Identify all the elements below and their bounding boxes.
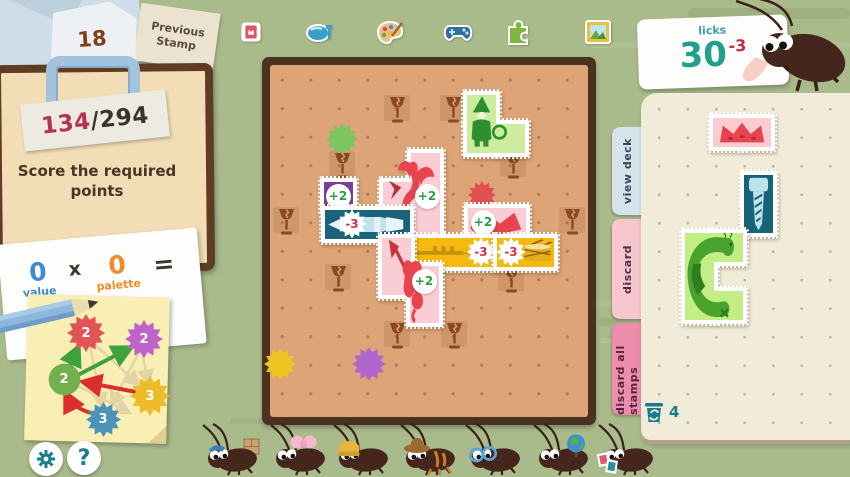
objective-text: Score the required points (6, 162, 188, 201)
previous-stamp-count: 18 (77, 26, 108, 52)
cupid-stamp[interactable]: +2 (378, 234, 443, 327)
screw-stamp[interactable] (740, 171, 777, 237)
broken-goblet-icon (563, 208, 582, 235)
crew-roach-globe[interactable] (531, 422, 593, 477)
broken-goblet-icon (329, 265, 348, 292)
discard-label: discard (621, 245, 634, 294)
value-number: 0 (20, 258, 56, 286)
licking-roach (722, 0, 850, 98)
score-current: 134 (40, 108, 92, 139)
crew-roach-glasses[interactable] (463, 422, 525, 477)
crew-roach-bow[interactable] (268, 422, 330, 477)
crown-stamp[interactable] (709, 114, 775, 151)
broken-goblet-icon (445, 322, 464, 349)
discard-count: 4 (669, 403, 679, 421)
caterpillar-stamp[interactable] (681, 229, 747, 324)
broken-goblet-icon (277, 208, 296, 235)
food-icon[interactable] (305, 17, 335, 47)
puzzle-icon[interactable] (503, 17, 533, 47)
times-sign: x (68, 260, 82, 280)
controller-icon[interactable] (443, 17, 473, 47)
previous-stamp-card[interactable]: Previous Stamp (133, 3, 220, 72)
view-deck-tab[interactable]: view deck (612, 127, 642, 215)
mini-stamp-icon[interactable] (238, 19, 264, 45)
crew-roach-stamps[interactable] (596, 422, 658, 477)
palette-icon[interactable] (375, 17, 405, 47)
discard-tab[interactable]: discard (612, 219, 642, 319)
frame-icon[interactable] (583, 17, 613, 47)
broken-goblet-icon (444, 96, 463, 123)
stamp-bonus-badge: +2 (412, 269, 437, 294)
crew-roach-cowboy-hat[interactable] (398, 422, 460, 477)
gnome-art-icon (467, 95, 525, 153)
licks-value: 30 (679, 40, 727, 72)
drum-stamp[interactable]: -3 (493, 234, 558, 271)
broken-goblet-icon (388, 96, 407, 123)
equals-sign: = (152, 251, 175, 278)
view-deck-label: view deck (621, 138, 634, 204)
palette-number: 0 (94, 251, 141, 280)
broken-goblet-icon (333, 152, 352, 179)
settings-button[interactable] (29, 442, 63, 476)
crown-art-icon (713, 118, 771, 147)
discard-all-stamps-label: discard all stamps (614, 323, 640, 415)
help-button[interactable]: ? (67, 441, 101, 475)
crew-roach-box[interactable] (200, 422, 262, 477)
gear-icon (36, 449, 56, 469)
crew-roach-beanie[interactable] (331, 422, 393, 477)
stamp-bonus-badge: +2 (415, 184, 440, 209)
game-screen: Previous Stamp 18 134/294 Score the requ… (0, 0, 850, 477)
screw-art-icon (744, 175, 773, 233)
score-target: 294 (98, 102, 150, 133)
stamp-bonus-badge: +2 (471, 210, 496, 235)
help-label: ? (78, 446, 91, 471)
previous-stamp-label: Previous Stamp (135, 17, 218, 56)
caterpillar-art-icon (685, 233, 743, 320)
gnome-stamp[interactable] (463, 91, 529, 157)
stamp-bonus-badge: +2 (326, 184, 351, 209)
discard-bin-icon[interactable] (642, 400, 666, 424)
discard-all-stamps-tab[interactable]: discard all stamps (612, 323, 642, 415)
